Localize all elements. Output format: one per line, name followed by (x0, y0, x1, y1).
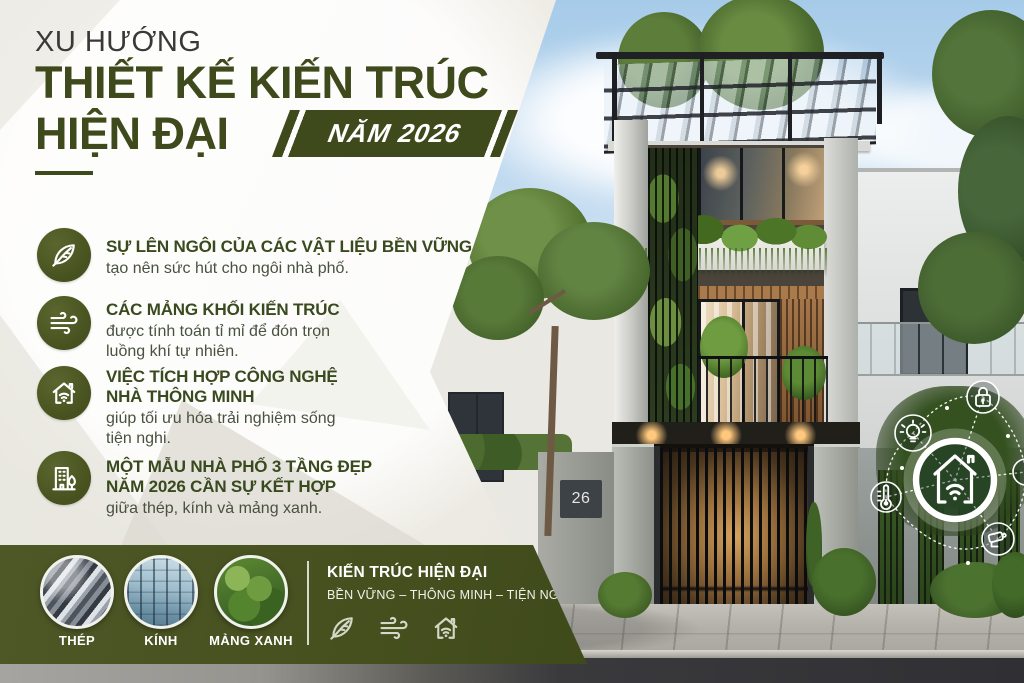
feature-text: VIỆC TÍCH HỢP CÔNG NGHỆ NHÀ THÔNG MINH g… (106, 366, 338, 448)
footer-bar: THÉP KÍNH MẢNG XANH KIẾN TRÚC HIỆN ĐẠI B… (0, 545, 590, 664)
footer-heading: KIẾN TRÚC HIỆN ĐẠI (327, 564, 572, 582)
house-number: 26 (572, 490, 591, 508)
feature-body: được tính toán tỉ mỉ để đón trọn luồng k… (106, 322, 339, 361)
wind-icon (379, 613, 409, 643)
feature-item-smart-home: VIỆC TÍCH HỢP CÔNG NGHỆ NHÀ THÔNG MINH g… (37, 366, 338, 448)
feature-item-combination: MỘT MẪU NHÀ PHỐ 3 TẦNG ĐẸP NĂM 2026 CẦN … (37, 451, 372, 519)
title-line1: THIẾT KẾ KIẾN TRÚC (35, 59, 509, 108)
poster: 26 (0, 0, 1024, 683)
smart-home-overlay (850, 350, 1024, 583)
feature-heading: SỰ LÊN NGÔI CỦA CÁC VẬT LIỆU BỀN VỮNG (106, 237, 472, 257)
gate-frame (654, 446, 660, 612)
smart-home-hub-icon (908, 433, 1002, 527)
title-line2-row: HIỆN ĐẠI NĂM 2026 (35, 110, 509, 159)
satellite-partial-circle (1013, 459, 1024, 485)
smart-home-icon (37, 366, 91, 420)
title-block: XU HƯỚNG THIẾT KẾ KIẾN TRÚC HIỆN ĐẠI NĂM… (35, 26, 509, 175)
steel-photo (40, 555, 114, 629)
vertical-garden (648, 148, 698, 429)
pergola-beam (596, 52, 884, 59)
building-tree-icon (37, 451, 91, 505)
title-line2: HIỆN ĐẠI (35, 110, 229, 159)
lock-icon (967, 381, 999, 413)
house-number-plaque: 26 (560, 480, 602, 518)
node-dot (945, 406, 949, 410)
year-badge-label: NĂM 2026 (322, 118, 466, 149)
green-wall-photo (214, 555, 288, 629)
cctv-camera-icon (982, 523, 1014, 555)
feature-heading: CÁC MẢNG KHỐI KIẾN TRÚC (106, 300, 339, 320)
footer-icons (327, 613, 572, 643)
pergola-post (700, 52, 704, 148)
footer-subheading: BỀN VỮNG – THÔNG MINH – TIỆN NGHI (327, 588, 572, 602)
smart-home-icon (431, 613, 461, 643)
feature-body: tạo nên sức hút cho ngôi nhà phố. (106, 259, 472, 279)
pergola-post (877, 52, 882, 124)
feature-text: SỰ LÊN NGÔI CỦA CÁC VẬT LIỆU BỀN VỮNG tạ… (106, 228, 472, 282)
shrub (598, 572, 652, 618)
thermometer-icon (871, 482, 901, 512)
feature-body: giữa thép, kính và mảng xanh. (106, 499, 372, 519)
leaf-icon (327, 613, 357, 643)
footer-item-label: MẢNG XANH (191, 633, 311, 648)
footer-text-block: KIẾN TRÚC HIỆN ĐẠI BỀN VỮNG – THÔNG MINH… (327, 564, 572, 643)
wind-icon (37, 296, 91, 350)
node-dot (900, 466, 904, 470)
feature-item-materials: SỰ LÊN NGÔI CỦA CÁC VẬT LIỆU BỀN VỮNG tạ… (37, 228, 472, 282)
year-badge: NĂM 2026 (271, 110, 517, 157)
slat-gate (660, 448, 810, 608)
title-underline (35, 171, 93, 175)
node-dot (1006, 434, 1010, 438)
pergola-post (788, 52, 792, 148)
ground-floor-canopy (612, 422, 860, 446)
leaf-icon (37, 228, 91, 282)
tree-foliage (538, 222, 650, 320)
node-dot (966, 561, 970, 565)
feature-text: CÁC MẢNG KHỐI KIẾN TRÚC được tính toán t… (106, 296, 339, 361)
title-eyebrow: XU HƯỚNG (35, 26, 509, 59)
feature-heading: MỘT MẪU NHÀ PHỐ 3 TẦNG ĐẸP NĂM 2026 CẦN … (106, 457, 372, 497)
glass-photo (124, 555, 198, 629)
footer-divider (307, 561, 309, 645)
feature-text: MỘT MẪU NHÀ PHỐ 3 TẦNG ĐẸP NĂM 2026 CẦN … (106, 451, 372, 519)
second-floor-ceiling (698, 286, 824, 299)
balcony-railing (694, 356, 828, 431)
tree-foliage (918, 232, 1024, 344)
feature-item-massing: CÁC MẢNG KHỐI KIẾN TRÚC được tính toán t… (37, 296, 339, 361)
feature-body: giúp tối ưu hóa trải nghiệm sống tiện ng… (106, 409, 338, 448)
feature-heading: VIỆC TÍCH HỢP CÔNG NGHỆ NHÀ THÔNG MINH (106, 367, 338, 407)
